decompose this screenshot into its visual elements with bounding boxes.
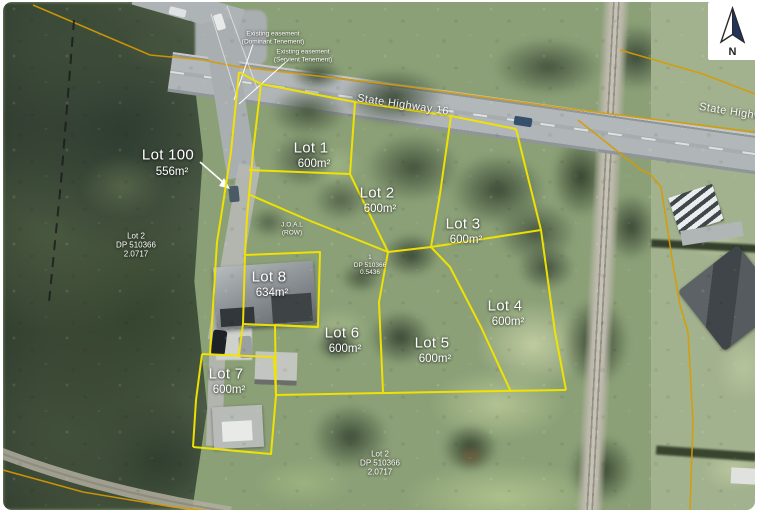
lot-area-5: 600m² (419, 353, 452, 365)
north-label: N (729, 46, 737, 58)
parcel-ref-south: Lot 2 DP 510366 2.0717 (360, 450, 400, 477)
parcel-ref-west: Lot 2 DP 510366 2.0717 (116, 232, 156, 259)
easement-servient-line1: Existing easement (274, 49, 332, 57)
parcel-center-line1: 1 (354, 254, 386, 262)
lot-label-6: Lot 6 (325, 325, 360, 342)
parcel-south-line3: 2.0717 (360, 468, 400, 477)
joal-label: J.O.A.L (ROW) (281, 222, 303, 237)
easement-dominant-line2: (Dominant Tenement) (242, 38, 304, 46)
lot-area-4: 600m² (492, 316, 525, 328)
north-arrow: N (708, 2, 757, 60)
lot-area-6: 600m² (329, 343, 362, 355)
lot-area-7: 600m² (213, 384, 246, 396)
listing-map-page: Lot 100 556m² Lot 1 600m² Lot 2 600m² Lo… (0, 0, 768, 512)
lot-label-7: Lot 7 (209, 366, 244, 383)
lot-label-4: Lot 4 (488, 298, 523, 315)
dashed-survey-line (49, 20, 74, 302)
lot-area-3: 600m² (450, 234, 483, 246)
north-arrow-icon: N (709, 3, 756, 59)
parcel-ref-center: 1 DP 510366 0.5436 (354, 254, 386, 277)
lot-area-1: 600m² (298, 158, 331, 170)
easement-note-servient: Existing easement (Servient Tenement) (274, 49, 332, 64)
parcel-west-line3: 2.0717 (116, 250, 156, 259)
lot-label-2: Lot 2 (360, 185, 395, 202)
parcel-center-line3: 0.5436 (354, 269, 386, 277)
parcel-west-line2: DP 510366 (116, 241, 156, 250)
lot-label-3: Lot 3 (446, 216, 481, 233)
easement-servient-line2: (Servient Tenement) (274, 56, 332, 64)
lot-area-2: 600m² (364, 203, 397, 215)
easement-note-dominant: Existing easement (Dominant Tenement) (242, 31, 304, 46)
lot-area-8: 634m² (256, 287, 289, 299)
joal-line2: (ROW) (281, 229, 303, 237)
lot-area-100: 556m² (156, 166, 189, 178)
lot-label-100: Lot 100 (142, 147, 194, 164)
lot-label-8: Lot 8 (252, 269, 287, 286)
parcel-south-line1: Lot 2 (360, 450, 400, 459)
parcel-west-line1: Lot 2 (116, 232, 156, 241)
joal-line1: J.O.A.L (281, 222, 303, 230)
parcel-center-line2: DP 510366 (354, 261, 386, 269)
parcel-south-line2: DP 510366 (360, 459, 400, 468)
easement-dominant-line1: Existing easement (242, 31, 304, 39)
aerial-photo: Lot 100 556m² Lot 1 600m² Lot 2 600m² Lo… (3, 2, 755, 510)
lot-label-5: Lot 5 (415, 335, 450, 352)
lot-label-1: Lot 1 (294, 140, 329, 157)
